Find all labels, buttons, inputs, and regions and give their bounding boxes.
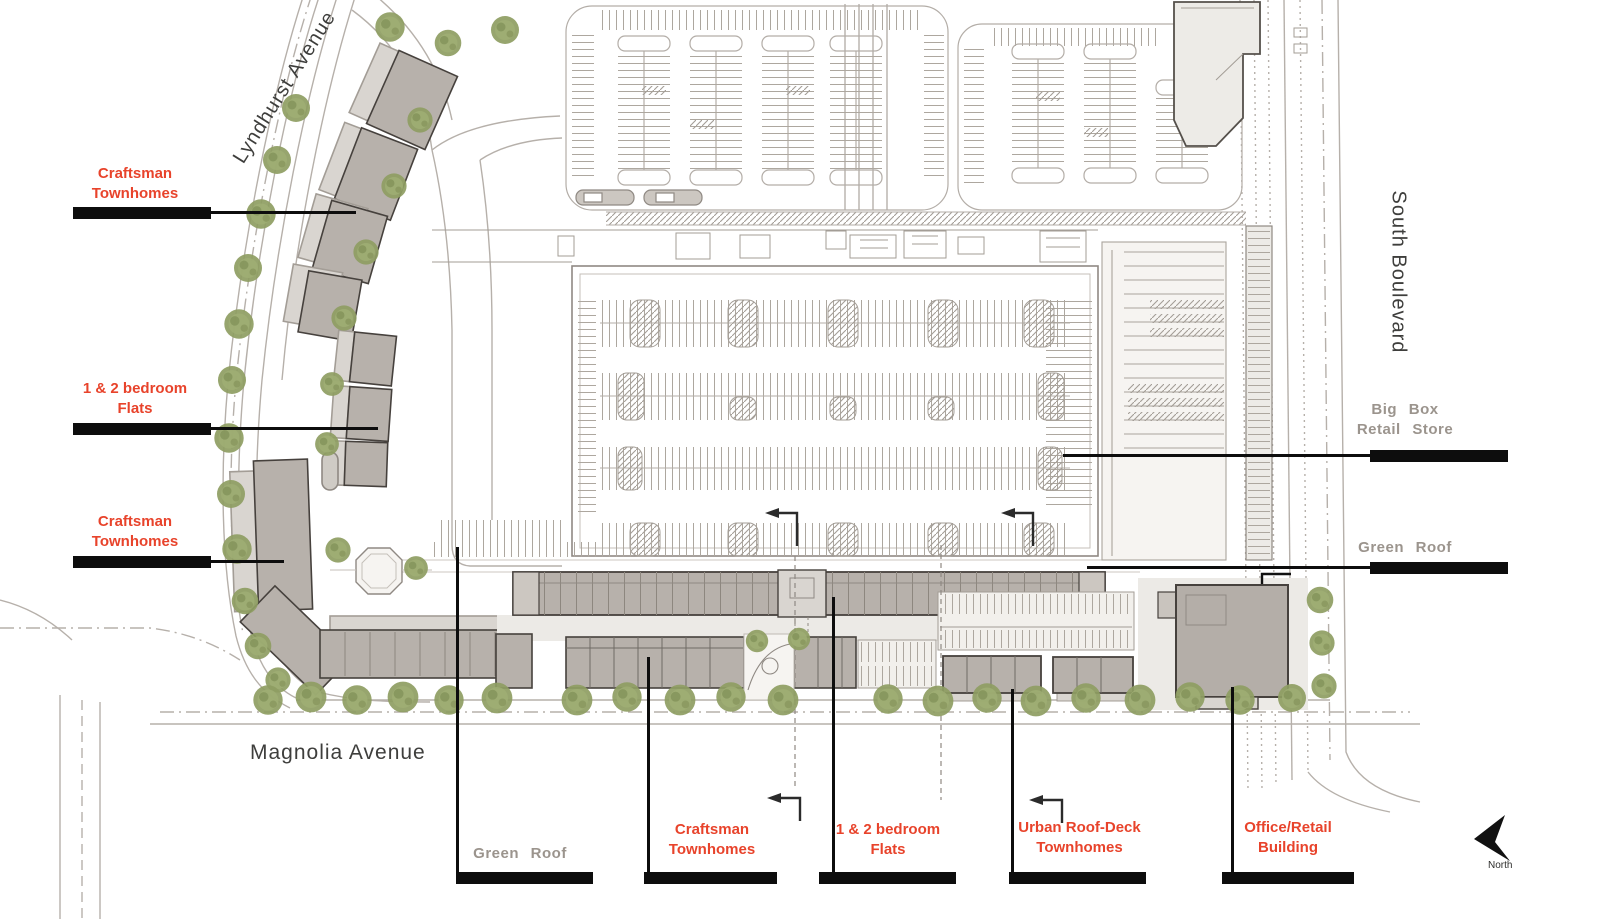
hatched-walk-strip xyxy=(606,212,1246,225)
leader-bar-flats-left xyxy=(73,423,211,435)
leader-bar-craftsman-bottom xyxy=(644,872,777,884)
callout-craftsman-townhomes-upper: Craftsman Townhomes xyxy=(60,164,210,204)
callout-flats-left: 1 & 2 bedroom Flats xyxy=(55,379,215,419)
leader-line-big-box xyxy=(1063,454,1370,457)
leader-line-flats-left xyxy=(208,427,378,430)
callout-urban-roofdeck: Urban Roof-Deck Townhomes xyxy=(1002,818,1157,858)
site-plan-page: Lyndhurst Avenue South Boulevard Magnoli… xyxy=(0,0,1600,919)
callout-craftsman-townhomes-lower: Craftsman Townhomes xyxy=(60,512,210,552)
callout-office-retail: Office/Retail Building xyxy=(1212,818,1364,858)
leader-bar-urban-roofdeck xyxy=(1009,872,1146,884)
callout-green-roof-bottom: Green Roof xyxy=(445,844,595,864)
east-sliver-building xyxy=(1246,226,1272,560)
callout-green-roof-right: Green Roof xyxy=(1330,538,1480,558)
craftsman-townhomes-west xyxy=(283,43,457,341)
callout-flats-bottom: 1 & 2 bedroom Flats xyxy=(813,820,963,860)
leader-line-craftsman-lower xyxy=(208,560,284,563)
leader-bar-green-roof-right xyxy=(1370,562,1508,574)
leader-bar-craftsman-lower xyxy=(73,556,211,568)
leader-bar-flats-bottom xyxy=(819,872,956,884)
callout-craftsman-bottom: Craftsman Townhomes xyxy=(638,820,786,860)
north-label: North xyxy=(1488,860,1512,871)
leader-bar-craftsman-upper xyxy=(73,207,211,219)
leader-line-green-roof-right xyxy=(1087,566,1370,569)
callout-big-box-retail: Big Box Retail Store xyxy=(1330,400,1480,439)
leader-bar-green-roof-bottom xyxy=(456,872,593,884)
flats-west-building xyxy=(322,330,396,490)
leader-bar-big-box xyxy=(1370,450,1508,462)
street-label-south-boulevard: South Boulevard xyxy=(1386,155,1410,390)
service-area xyxy=(432,230,1098,262)
leader-bar-office-retail xyxy=(1222,872,1354,884)
north-arrow-icon xyxy=(1474,815,1510,861)
corner-building-northeast xyxy=(1174,2,1307,146)
east-service-structure xyxy=(1102,242,1226,560)
leader-line-craftsman-upper xyxy=(208,211,356,214)
parking-lot-northwest xyxy=(566,6,948,210)
street-label-magnolia: Magnolia Avenue xyxy=(250,741,426,765)
leader-line-green-roof-bottom xyxy=(456,547,459,872)
